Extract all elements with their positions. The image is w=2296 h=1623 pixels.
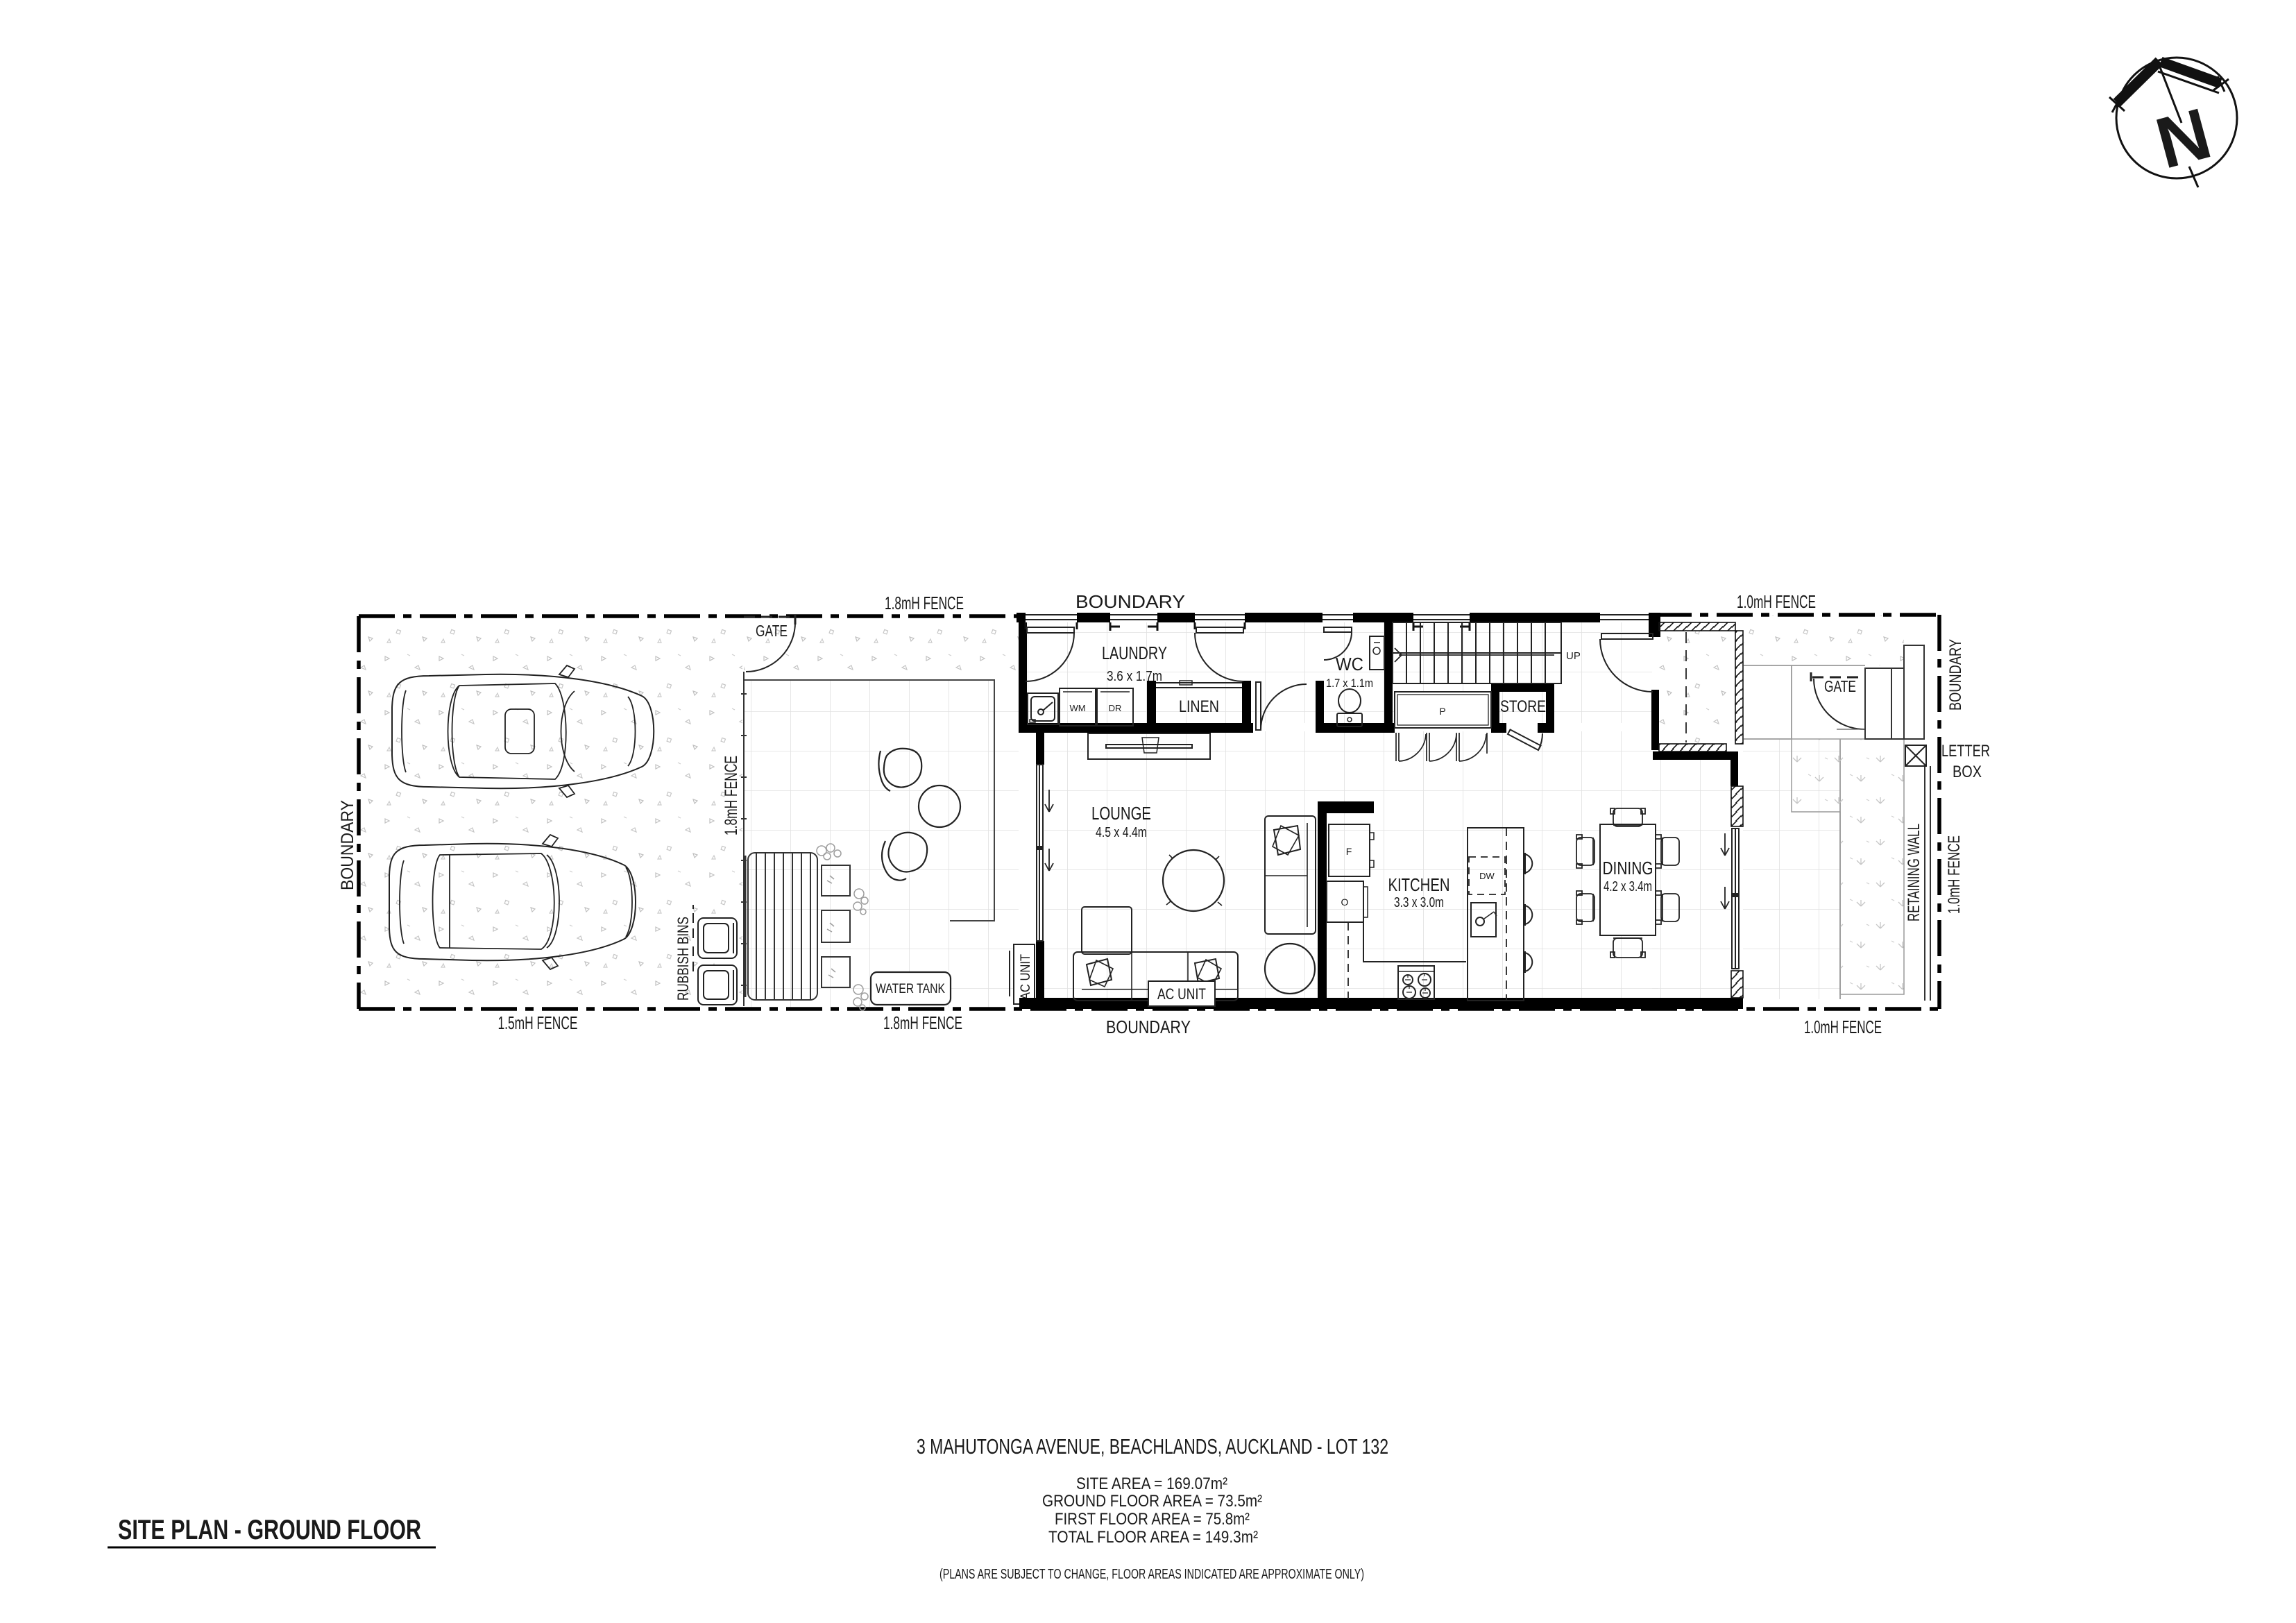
svg-text:KITCHEN: KITCHEN xyxy=(1388,874,1450,895)
svg-text:SITE AREA = 169.07m²: SITE AREA = 169.07m² xyxy=(1076,1475,1227,1493)
svg-text:RETAINING WALL: RETAINING WALL xyxy=(1905,824,1923,921)
svg-text:LAUNDRY: LAUNDRY xyxy=(1102,643,1167,663)
svg-text:1.5mH FENCE: 1.5mH FENCE xyxy=(498,1012,578,1033)
svg-text:BOX: BOX xyxy=(1953,763,1982,781)
svg-text:BOUNDARY: BOUNDARY xyxy=(1946,639,1965,711)
svg-text:1.8mH FENCE: 1.8mH FENCE xyxy=(722,756,741,835)
svg-text:GROUND FLOOR AREA = 73.5m²: GROUND FLOOR AREA = 73.5m² xyxy=(1042,1492,1262,1511)
svg-text:3 MAHUTONGA AVENUE, BEACHLANDS: 3 MAHUTONGA AVENUE, BEACHLANDS, AUCKLAND… xyxy=(917,1434,1388,1459)
svg-text:BOUNDARY: BOUNDARY xyxy=(1106,1017,1191,1037)
svg-text:WATER TANK: WATER TANK xyxy=(876,982,945,996)
svg-text:SITE PLAN - GROUND FLOOR: SITE PLAN - GROUND FLOOR xyxy=(118,1515,421,1545)
svg-text:4.2 x 3.4m: 4.2 x 3.4m xyxy=(1604,879,1652,894)
svg-text:AC UNIT: AC UNIT xyxy=(1157,985,1206,1003)
svg-text:WC: WC xyxy=(1336,654,1363,674)
svg-text:1.0mH FENCE: 1.0mH FENCE xyxy=(1737,591,1816,612)
svg-text:1.7 x 1.1m: 1.7 x 1.1m xyxy=(1326,677,1373,690)
svg-text:1.8mH FENCE: 1.8mH FENCE xyxy=(885,593,964,613)
svg-text:F: F xyxy=(1346,846,1352,857)
svg-text:LETTER: LETTER xyxy=(1941,742,1990,760)
svg-text:BOUNDARY: BOUNDARY xyxy=(1075,591,1185,612)
svg-text:WM: WM xyxy=(1069,703,1085,713)
svg-text:BOUNDARY: BOUNDARY xyxy=(338,800,357,890)
svg-text:FIRST FLOOR AREA = 75.8m²: FIRST FLOOR AREA = 75.8m² xyxy=(1055,1510,1250,1529)
svg-text:UP: UP xyxy=(1566,650,1581,662)
svg-text:GATE: GATE xyxy=(1824,677,1856,695)
svg-text:P: P xyxy=(1439,706,1445,717)
svg-text:1.0mH FENCE: 1.0mH FENCE xyxy=(1945,835,1964,914)
svg-text:AC UNIT: AC UNIT xyxy=(1019,954,1033,1000)
svg-text:GATE: GATE xyxy=(756,622,788,640)
svg-text:STORE: STORE xyxy=(1500,697,1546,716)
svg-text:1.0mH FENCE: 1.0mH FENCE xyxy=(1804,1017,1882,1037)
svg-text:TOTAL FLOOR AREA = 149.3m²: TOTAL FLOOR AREA = 149.3m² xyxy=(1048,1528,1258,1547)
svg-text:3.3 x 3.0m: 3.3 x 3.0m xyxy=(1394,895,1444,910)
svg-text:DR: DR xyxy=(1109,703,1122,713)
svg-text:1.8mH FENCE: 1.8mH FENCE xyxy=(883,1012,962,1033)
svg-text:LINEN: LINEN xyxy=(1179,697,1219,716)
svg-text:3.6 x 1.7m: 3.6 x 1.7m xyxy=(1107,669,1162,684)
svg-text:RUBBISH BINS: RUBBISH BINS xyxy=(674,917,692,1001)
svg-text:(PLANS ARE SUBJECT TO CHANGE,: (PLANS ARE SUBJECT TO CHANGE, FLOOR AREA… xyxy=(939,1567,1364,1582)
svg-text:4.5 x 4.4m: 4.5 x 4.4m xyxy=(1096,825,1147,840)
svg-text:DW: DW xyxy=(1479,871,1495,881)
svg-text:O: O xyxy=(1341,897,1349,908)
svg-text:DINING: DINING xyxy=(1603,858,1653,878)
svg-text:LOUNGE: LOUNGE xyxy=(1091,803,1151,824)
